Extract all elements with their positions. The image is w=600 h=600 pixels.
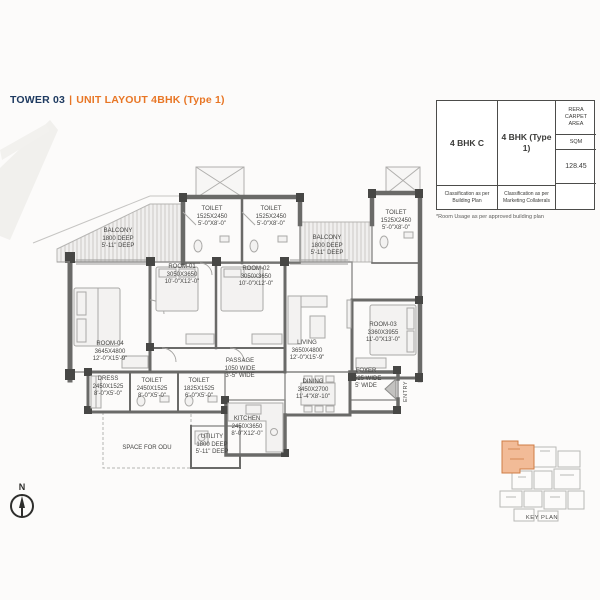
kitchen-counter <box>228 403 283 452</box>
north-compass: N <box>11 482 33 517</box>
key-plan: KEY PLAN <box>500 441 584 521</box>
balcony-left-area <box>33 196 183 262</box>
key-plan-highlighted-unit <box>502 441 534 473</box>
entry-label: ENTRY <box>403 381 409 402</box>
page: TOWER 03|UNIT LAYOUT 4BHK (Type 1) 4 BHK… <box>0 0 600 600</box>
dining-table <box>301 376 335 412</box>
floor-plan: ENTRY N KEY PLAN <box>0 0 600 600</box>
sofa <box>288 296 301 344</box>
odu-space-outline <box>103 412 191 468</box>
balcony-mid-area <box>300 222 372 262</box>
duct-box <box>239 172 261 190</box>
key-plan-label: KEY PLAN <box>526 515 558 521</box>
north-label: N <box>19 482 26 492</box>
